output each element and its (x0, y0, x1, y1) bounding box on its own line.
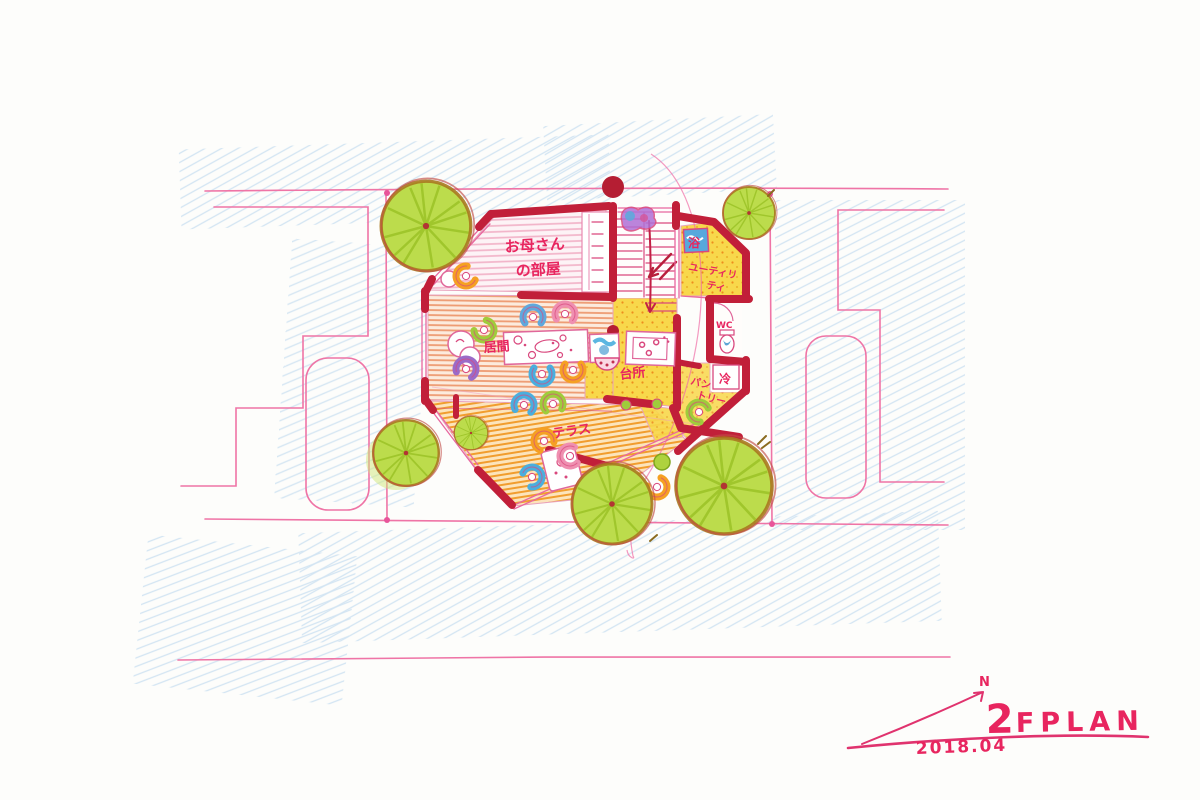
tree-left (373, 418, 441, 486)
sketch-svg: お母さん の部屋 居間 台所 テラス ユーティリ ティ パン トリー 浴 WC … (0, 0, 1200, 800)
label-wc: WC (716, 321, 733, 331)
title-block: N 2 FPLAN 2018.04 (848, 675, 1148, 759)
kitchen-counter (590, 331, 676, 370)
north-label: N (979, 675, 990, 690)
tree-trunk-dot (602, 176, 624, 198)
title-date: 2018.04 (915, 736, 1007, 759)
title-plan-text: FPLAN (1016, 706, 1145, 739)
dining-chair (563, 364, 583, 380)
dining-chair (532, 368, 552, 384)
floor-plan-sketch: お母さん の部屋 居間 台所 テラス ユーティリ ティ パン トリー 浴 WC … (0, 0, 1200, 800)
tree-terrace-small (454, 415, 489, 450)
closet (582, 212, 611, 292)
label-living: 居間 (483, 339, 510, 356)
label-mother-room-2: の部屋 (515, 260, 561, 280)
dining-chair (523, 307, 543, 323)
north-arrow (862, 692, 983, 744)
tree-bottom-center (572, 462, 655, 545)
label-bath: 浴 (688, 235, 701, 250)
label-mother-room-1: お母さん (504, 235, 565, 256)
tree-bottom-right (676, 435, 776, 535)
tree-top-left (381, 178, 474, 271)
plant-pot (621, 207, 656, 231)
stove (625, 331, 675, 366)
label-fridge: 冷 (719, 371, 731, 386)
label-kitchen: 台所 (619, 364, 647, 383)
tree-top-right (723, 185, 777, 239)
